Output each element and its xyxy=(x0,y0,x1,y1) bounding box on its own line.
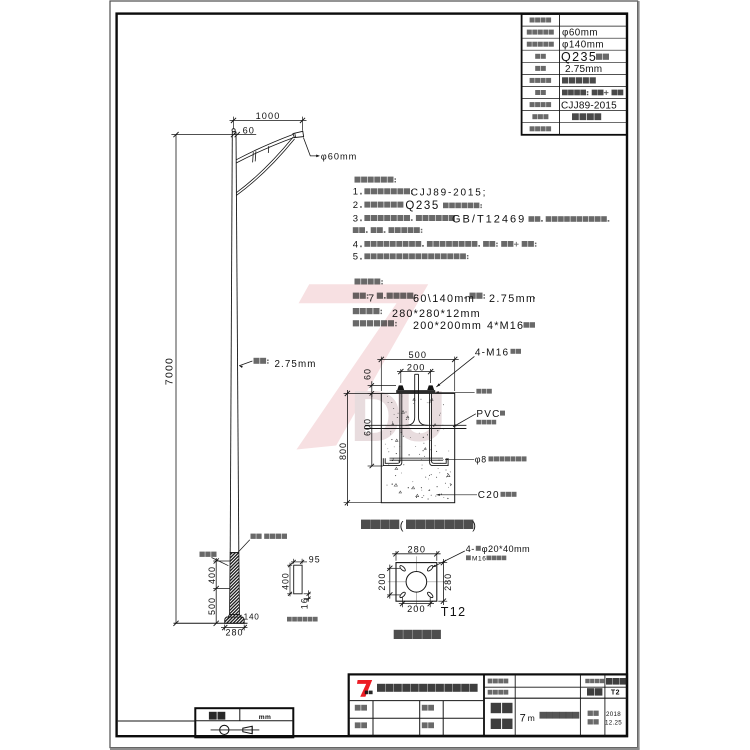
svg-text:7: 7 xyxy=(368,292,374,304)
svg-text:φ8: φ8 xyxy=(475,455,487,465)
svg-text:280: 280 xyxy=(443,573,453,591)
svg-text:Q235: Q235 xyxy=(405,200,440,212)
svg-text:1000: 1000 xyxy=(256,111,281,121)
svg-text:(: ( xyxy=(400,520,404,532)
svg-text:400: 400 xyxy=(281,572,291,590)
svg-text:Q235: Q235 xyxy=(561,50,597,64)
svg-text:600: 600 xyxy=(362,418,372,436)
svg-text:280: 280 xyxy=(225,627,243,637)
svg-text:280*280*12mm: 280*280*12mm xyxy=(392,308,481,320)
svg-text:500: 500 xyxy=(207,597,217,615)
svg-text:2018: 2018 xyxy=(606,711,621,718)
svg-text:200: 200 xyxy=(407,604,426,614)
svg-text:200: 200 xyxy=(407,362,426,372)
svg-text:60: 60 xyxy=(362,368,372,380)
svg-text:C20: C20 xyxy=(478,490,500,501)
svg-text:7000: 7000 xyxy=(164,357,176,385)
svg-text:4: 4 xyxy=(353,239,359,250)
svg-text:3: 3 xyxy=(353,213,359,224)
svg-text:): ) xyxy=(472,520,476,532)
svg-text:mm: mm xyxy=(259,714,272,721)
svg-text:M16: M16 xyxy=(472,555,486,562)
svg-text:2.75mm: 2.75mm xyxy=(275,359,317,370)
svg-text:CJJ89-2015;: CJJ89-2015; xyxy=(411,187,488,198)
svg-text:T12: T12 xyxy=(441,605,467,619)
svg-text:φ20*40mm: φ20*40mm xyxy=(482,544,530,554)
svg-text:PVC: PVC xyxy=(476,409,500,420)
svg-text:φ60mm: φ60mm xyxy=(321,151,357,161)
svg-text:4-M16: 4-M16 xyxy=(475,348,509,359)
svg-text:500: 500 xyxy=(408,350,427,360)
svg-text:CJJ89-2015: CJJ89-2015 xyxy=(561,100,617,111)
svg-text:2.75mm: 2.75mm xyxy=(565,64,602,75)
svg-text:95: 95 xyxy=(309,554,321,564)
svg-text:φ140mm: φ140mm xyxy=(562,39,604,50)
svg-text:12.25: 12.25 xyxy=(605,720,622,727)
svg-text:200: 200 xyxy=(377,573,387,591)
svg-text:φ60mm: φ60mm xyxy=(562,27,598,38)
svg-text:800: 800 xyxy=(338,442,348,460)
svg-text:140: 140 xyxy=(244,612,260,621)
svg-text:4-: 4- xyxy=(466,544,475,554)
svg-text:m: m xyxy=(528,713,536,723)
svg-text:2: 2 xyxy=(353,200,359,211)
svg-text:60: 60 xyxy=(243,126,255,136)
svg-text:200*200mm: 200*200mm xyxy=(413,320,482,332)
svg-text:2.75mm: 2.75mm xyxy=(489,293,536,305)
svg-text:400: 400 xyxy=(207,566,217,584)
svg-text:60\140mm: 60\140mm xyxy=(413,293,475,305)
svg-text:16: 16 xyxy=(300,597,310,609)
svg-text:4*M16: 4*M16 xyxy=(487,320,524,332)
svg-text:280: 280 xyxy=(407,545,426,555)
svg-text:5: 5 xyxy=(353,252,359,263)
svg-text:T2: T2 xyxy=(611,690,620,697)
svg-text:GB/T12469: GB/T12469 xyxy=(452,213,526,225)
svg-text:7: 7 xyxy=(520,713,527,725)
svg-text:1: 1 xyxy=(353,187,359,198)
